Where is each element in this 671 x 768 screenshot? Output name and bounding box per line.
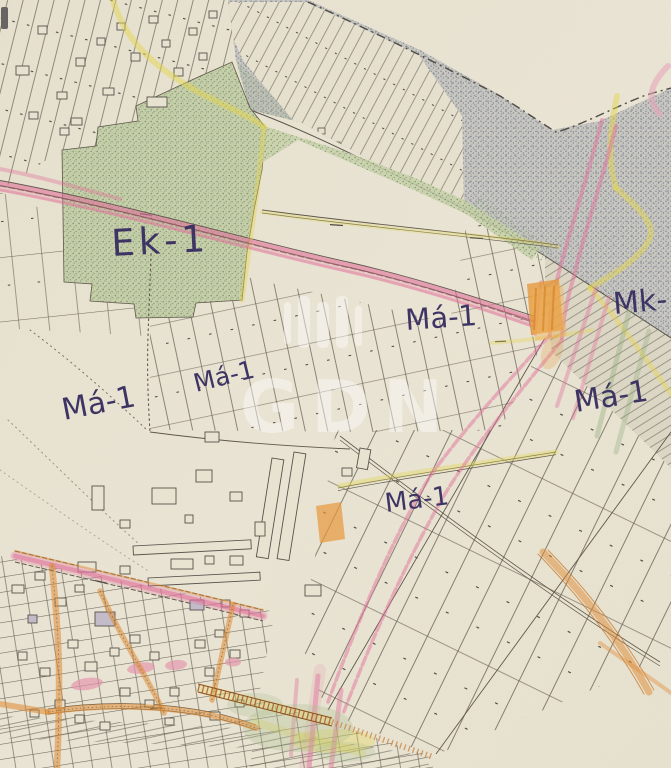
map-scan: Ek-1 Má-1 Má-1 Má-1 Má-1 Má-1 Mk- GDN	[0, 0, 671, 768]
paper-grain-overlay	[0, 0, 671, 768]
zoning-map-canvas: Ek-1 Má-1 Má-1 Má-1 Má-1 Má-1 Mk- GDN	[0, 0, 671, 768]
